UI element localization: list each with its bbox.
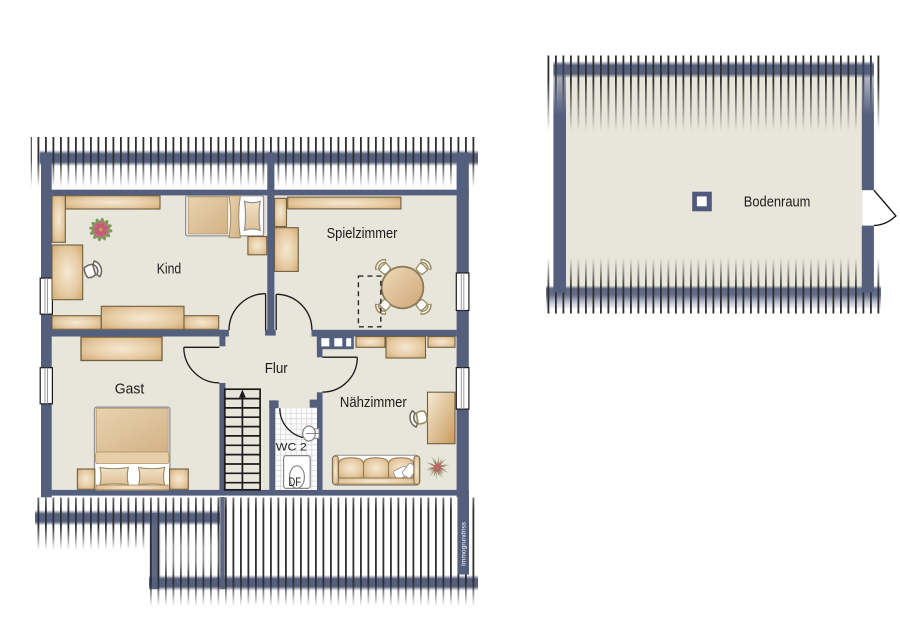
svg-text:DF: DF <box>289 477 302 489</box>
svg-text:Spielzimmer: Spielzimmer <box>327 226 398 242</box>
svg-text:WC 2: WC 2 <box>276 442 307 454</box>
svg-text:Bodenraum: Bodenraum <box>744 195 811 211</box>
svg-text:Flur: Flur <box>265 361 288 377</box>
svg-text:Kind: Kind <box>157 261 182 277</box>
svg-text:Immogrundriss: Immogrundriss <box>461 521 468 566</box>
svg-text:Nähzimmer: Nähzimmer <box>340 395 407 411</box>
svg-text:Gast: Gast <box>115 382 144 398</box>
